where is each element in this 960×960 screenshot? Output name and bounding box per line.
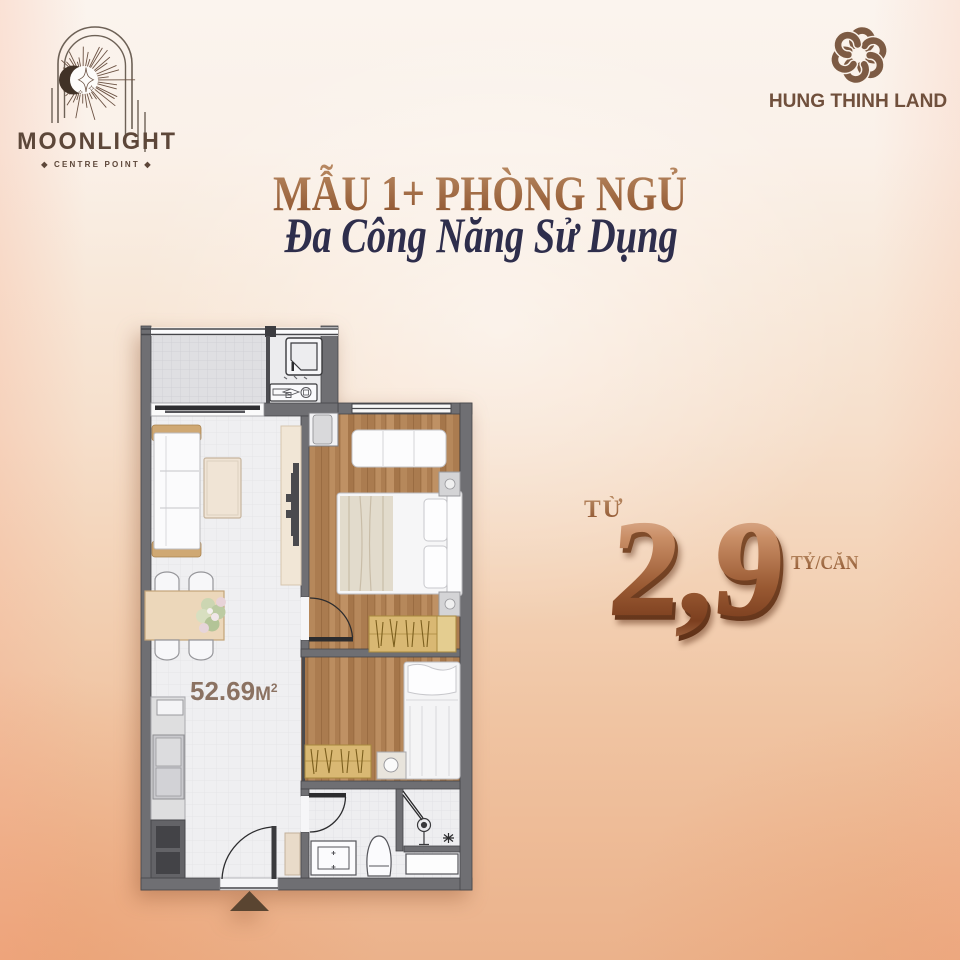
svg-text:2,9: 2,9 xyxy=(605,492,789,643)
